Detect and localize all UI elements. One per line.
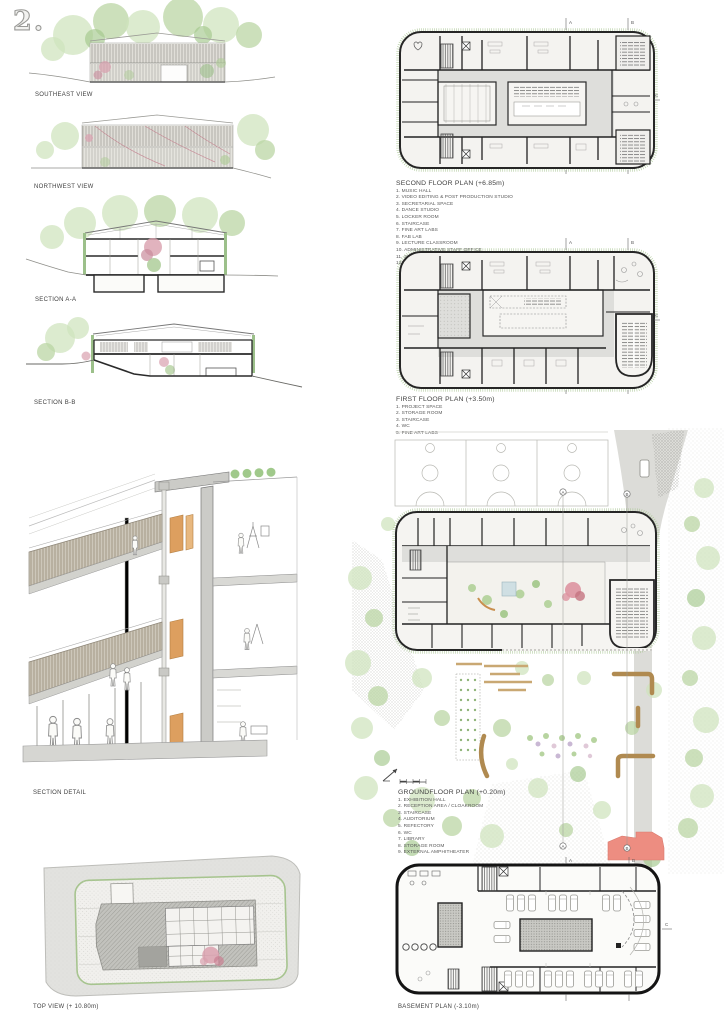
svg-text:C: C — [655, 93, 659, 98]
second-floor-plan-drawing: A B C — [394, 16, 662, 176]
legend-item: 4. DANCE STUDIO — [396, 208, 546, 215]
garden-elements — [456, 664, 653, 776]
legend-item: 7. FINE ART LABS — [396, 228, 546, 235]
legend-item: 5. REFECTORY — [398, 824, 548, 831]
svg-text:B: B — [626, 492, 629, 497]
north-arrow — [383, 769, 397, 781]
blossom-accent — [82, 352, 91, 361]
legend-item: 3. STAIRCASE — [396, 418, 546, 425]
second-floor-plan-title: SECOND FLOOR PLAN (+6.85m) — [396, 180, 546, 187]
flower-bed — [527, 733, 597, 759]
section-bb-label: SECTION B-B — [34, 400, 76, 406]
groundfloor-plan-legend: GROUNDFLOOR PLAN (+0.20m) 1. EXHIBITION … — [398, 789, 548, 857]
svg-text:B: B — [631, 20, 634, 25]
svg-text:A: A — [562, 844, 565, 849]
legend-item: 2. VIDEO EDITING & POST PRODUCTION STUDI… — [396, 195, 546, 202]
section-bb-drawing — [22, 312, 307, 398]
ground-line — [31, 168, 271, 178]
southeast-view-label: SOUTHEAST VIEW — [35, 92, 93, 98]
building-elevation — [82, 115, 233, 168]
legend-item: 5. LOCKER ROOM — [396, 215, 546, 222]
basement-section — [94, 275, 224, 292]
top-view-label: TOP VIEW (+ 10.80m) — [33, 1004, 99, 1010]
stone-path-right — [668, 428, 724, 874]
svg-text:B: B — [632, 858, 635, 863]
basement-plan-drawing: A B C — [390, 855, 705, 1003]
legend-item: 2. RECEPTION AREA / CLOAKROOM — [398, 804, 548, 811]
cut-wall-and-slabs — [201, 477, 297, 750]
presentation-board: 2. — [0, 0, 724, 1024]
section-aa-drawing — [20, 203, 285, 295]
louver-balcony-bands — [29, 510, 162, 748]
planting-grid — [460, 679, 476, 751]
svg-text:C: C — [665, 922, 669, 927]
legend-item: 7. LIBRARY — [398, 837, 548, 844]
svg-text:A: A — [569, 240, 572, 245]
tree-canopy — [40, 195, 245, 249]
section-detail-label: SECTION DETAIL — [33, 790, 86, 796]
svg-text:A: A — [569, 858, 572, 863]
groundfloor-plan-title: GROUNDFLOOR PLAN (+0.20m) — [398, 789, 548, 796]
northwest-elevation-drawing — [25, 110, 275, 182]
orange-doors — [170, 515, 193, 750]
section-aa-label: SECTION A-A — [35, 297, 76, 303]
building-footprint — [394, 510, 658, 652]
svg-text:B: B — [626, 846, 629, 851]
section-detail-drawing — [15, 430, 310, 785]
first-floor-plan-title: FIRST FLOOR PLAN (+3.50m) — [396, 396, 546, 403]
southeast-elevation-drawing — [25, 5, 280, 90]
building-section — [83, 221, 227, 275]
roof-plan — [75, 875, 288, 984]
tree-canopy — [37, 317, 89, 361]
first-floor-plan-drawing: A B C — [394, 236, 662, 396]
basketball-courts — [395, 432, 608, 506]
building-section — [91, 324, 255, 376]
legend-item: 2. STORAGE ROOM — [396, 411, 546, 418]
northwest-view-label: NORTHWEST VIEW — [34, 184, 94, 190]
interior-scenes — [217, 522, 269, 744]
svg-text:A: A — [562, 490, 565, 495]
scale-bar — [400, 779, 426, 784]
top-view-drawing — [14, 828, 319, 1000]
legend-item: 4. AUDITORIUM — [398, 817, 548, 824]
ground-slab — [23, 740, 267, 762]
svg-text:A: A — [569, 20, 572, 25]
basement-plan-title: BASEMENT PLAN (-3.10m) — [398, 1004, 479, 1010]
svg-text:C: C — [655, 313, 659, 318]
svg-text:B: B — [631, 240, 634, 245]
